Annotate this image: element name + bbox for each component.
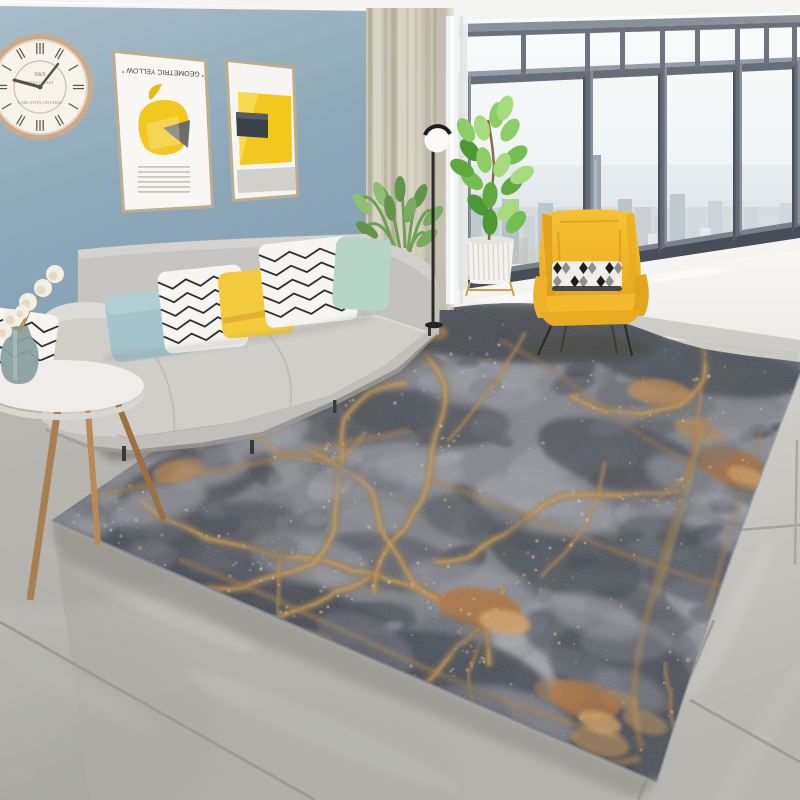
svg-text:S&S: S&S (34, 72, 45, 78)
svg-text:CARLSTON ONTARIO: CARLSTON ONTARIO (18, 100, 63, 105)
